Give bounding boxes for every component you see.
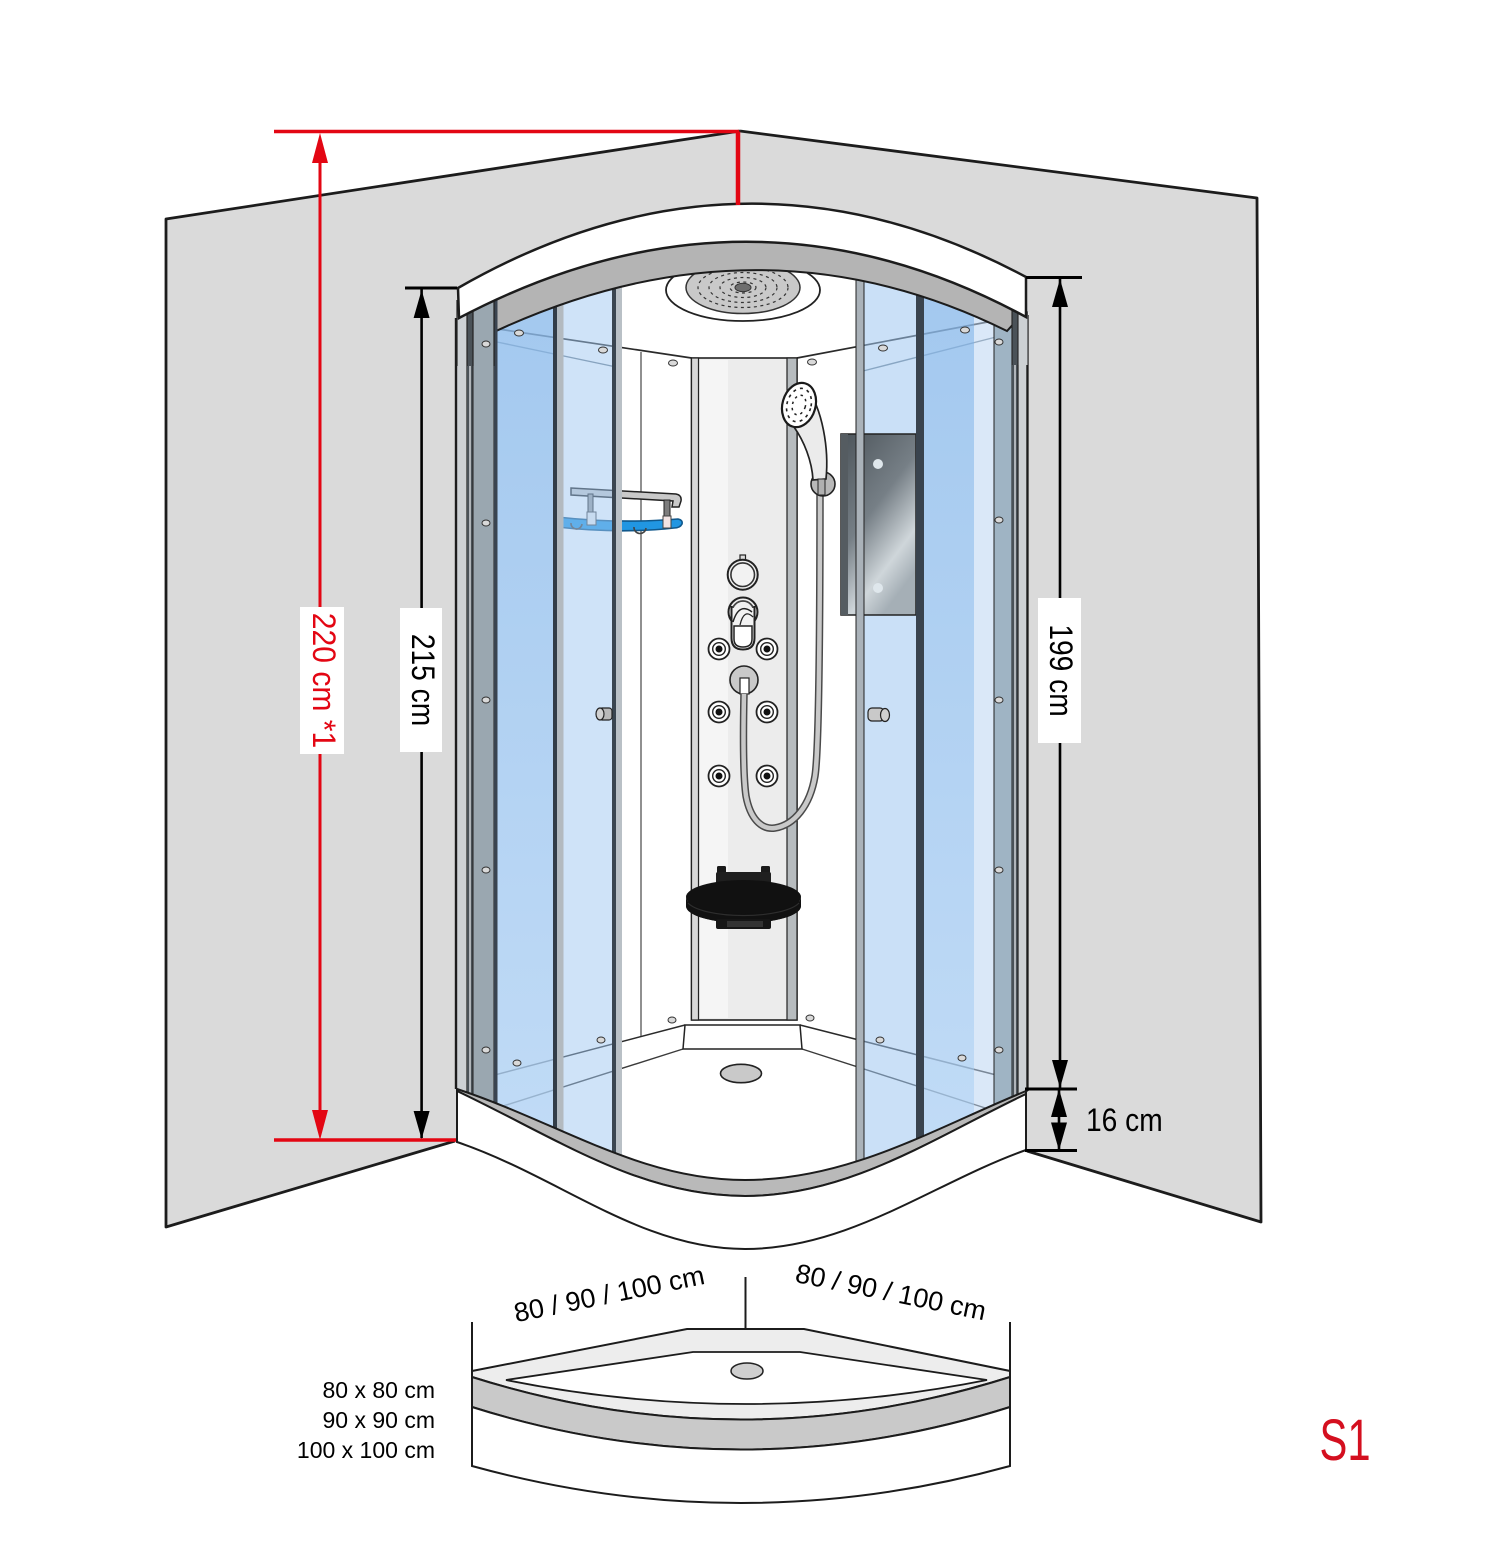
svg-text:S1: S1 [1319,1407,1370,1472]
svg-text:199 cm: 199 cm [1042,624,1077,716]
svg-text:220 cm *1: 220 cm *1 [306,613,342,748]
svg-text:100 x 100 cm: 100 x 100 cm [297,1437,435,1463]
svg-text:90 x 90 cm: 90 x 90 cm [323,1407,436,1433]
svg-text:16 cm: 16 cm [1086,1103,1163,1138]
svg-text:80 x 80 cm: 80 x 80 cm [323,1377,436,1403]
svg-text:215 cm: 215 cm [404,634,439,726]
